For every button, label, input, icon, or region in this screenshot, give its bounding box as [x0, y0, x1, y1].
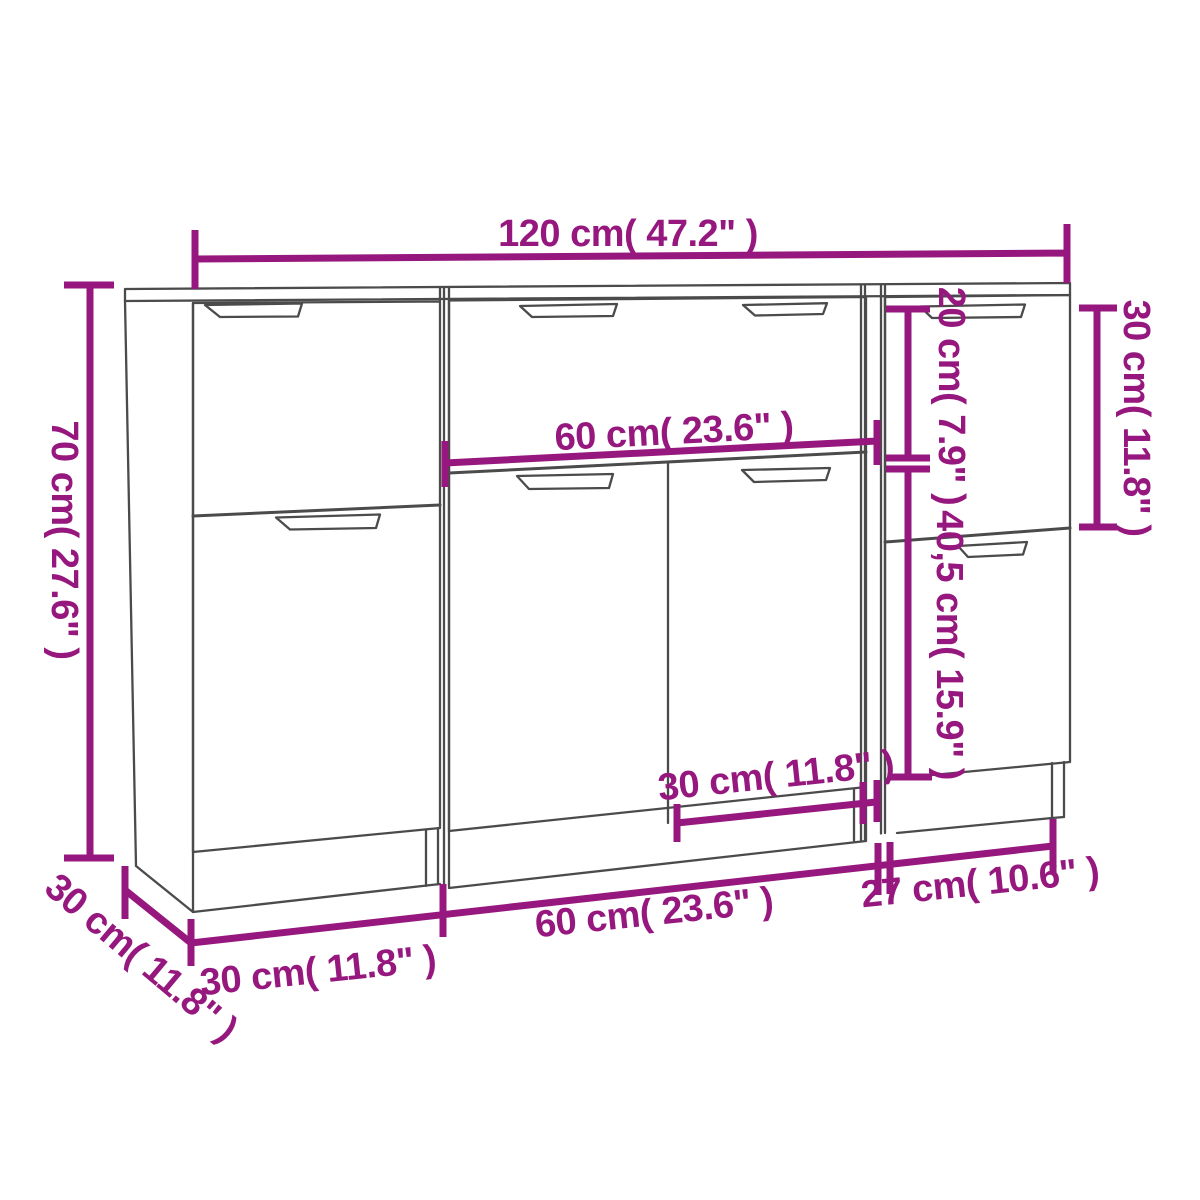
dim-line-right-door-height [1079, 308, 1117, 527]
label-total-width: 120 cm( 47.2" ) [498, 213, 758, 255]
diagram-canvas: 120 cm( 47.2" ) 70 cm( 27.6" ) 20 cm( 7.… [0, 0, 1200, 1200]
furniture-dimension-diagram: 120 cm( 47.2" ) 70 cm( 27.6" ) 20 cm( 7.… [0, 0, 1200, 1200]
label-depth: 30 cm( 11.8" ) [37, 866, 246, 1051]
right-unit-outline [885, 295, 1070, 780]
left-unit-divider [193, 505, 440, 516]
dim-line-drawer-height [886, 308, 930, 458]
label-right-top-door-height: 30 cm( 11.8" ) [1115, 299, 1157, 536]
middle-left-door-handle [517, 474, 613, 489]
label-lower-section-height: 40,5 cm( 15.9" ) [928, 510, 970, 780]
middle-unit-outline [449, 297, 866, 831]
label-drawer-height: 20 cm( 7.9" ) [930, 287, 972, 506]
left-unit-outline [193, 302, 440, 853]
label-total-height: 70 cm( 27.6" ) [43, 420, 85, 659]
right-unit-plinth [897, 762, 1064, 833]
middle-drawer-handle-left [520, 304, 617, 317]
left-unit-top-handle [205, 304, 302, 318]
middle-drawer-handle-right [743, 303, 827, 315]
cabinet-left-side-panel [125, 301, 193, 912]
dim-line-lower-section [886, 469, 932, 777]
label-top-drawer-width: 60 cm( 23.6" ) [553, 405, 794, 459]
label-right-unit-width: 27 cm( 10.6" ) [859, 850, 1101, 917]
middle-right-door-handle [742, 468, 830, 482]
label-left-unit-width: 30 cm( 11.8" ) [198, 938, 438, 1005]
dimension-labels: 120 cm( 47.2" ) 70 cm( 27.6" ) 20 cm( 7.… [37, 213, 1157, 1050]
right-unit-divider [885, 528, 1070, 542]
left-unit-bottom-handle [276, 515, 380, 530]
